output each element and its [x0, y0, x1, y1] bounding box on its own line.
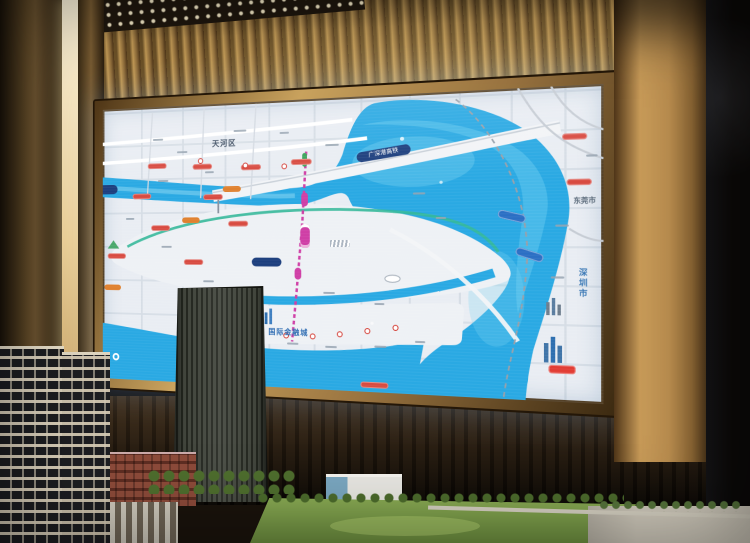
- model-residential-tower: [0, 346, 64, 543]
- map-microtext: [586, 154, 598, 157]
- map-microtext: [153, 139, 163, 141]
- map-microtext: [551, 276, 565, 278]
- showroom-photo: 天河区 国际金融城 深圳市 东莞市 广深港高铁: [0, 0, 750, 543]
- model-sports-field: [330, 516, 480, 536]
- route-badge: [184, 259, 203, 265]
- stadium-icon: [384, 275, 400, 283]
- convention-center-icon: [330, 240, 350, 247]
- dongguan-label: 东莞市: [573, 194, 595, 205]
- station-dot: [310, 333, 316, 339]
- map-microtext: [161, 246, 171, 248]
- map-microtext: [177, 151, 187, 153]
- transit-badge: [103, 185, 118, 195]
- canton-tower-icon: [217, 198, 219, 213]
- map-microtext: [323, 292, 335, 294]
- route-badge: [228, 221, 248, 227]
- model-tower-trees: [148, 468, 298, 494]
- map-microtext: [555, 224, 569, 226]
- ferry-badge: [252, 258, 282, 267]
- route-badge-orange: [182, 217, 200, 223]
- map-microtext: [325, 346, 337, 348]
- right-gold-pillar: [614, 0, 714, 462]
- map-microtext: [126, 218, 134, 220]
- map-microtext: [158, 180, 168, 182]
- skyline-icon: [557, 305, 560, 316]
- metro-station-badge: [300, 224, 310, 248]
- route-badge: [291, 159, 312, 166]
- skyline-icon: [546, 302, 549, 315]
- route-badge: [562, 133, 587, 140]
- hills-icon: [108, 240, 120, 248]
- model-residential-tower: [62, 352, 110, 543]
- map-microtext: [205, 171, 214, 173]
- map-microtext: [280, 132, 289, 134]
- metro-marker: [295, 268, 302, 280]
- metro-marker: [301, 192, 308, 206]
- route-badge: [133, 193, 152, 199]
- map-microtext: [415, 341, 425, 343]
- skyline-icon: [551, 337, 556, 363]
- map-microtext: [287, 342, 298, 344]
- map-microtext: [203, 280, 214, 282]
- landmark-badge: [548, 365, 575, 375]
- map-microtext: [374, 303, 384, 305]
- station-dot: [337, 331, 343, 337]
- route-badge: [151, 225, 170, 231]
- skyline-icon: [544, 343, 548, 363]
- shenzhen-label: 深圳市: [577, 268, 590, 299]
- skyline-icon: [552, 298, 555, 315]
- dark-glass-wall: [706, 0, 750, 543]
- route-badge: [567, 178, 592, 185]
- financial-city-label: 国际金融城: [268, 326, 308, 338]
- route-badge-orange: [104, 284, 121, 290]
- skyscraper-icon: [265, 312, 268, 324]
- skyline-icon: [557, 346, 562, 363]
- route-badge: [148, 163, 167, 169]
- map-microtext: [413, 192, 425, 194]
- skyscraper-icon: [269, 309, 272, 325]
- ferris-wheel-icon: [113, 353, 120, 361]
- route-badge-orange: [223, 186, 241, 192]
- model-tree-row: [258, 492, 624, 506]
- route-badge: [193, 164, 212, 170]
- station-dot: [364, 328, 370, 334]
- map-microtext: [374, 346, 386, 348]
- route-badge: [203, 194, 223, 200]
- district-label: 天河区: [212, 138, 236, 149]
- station-dot: [392, 325, 398, 331]
- led-screen-frame: 天河区 国际金融城 深圳市 东莞市 广深港高铁: [93, 70, 618, 418]
- route-badge: [108, 253, 126, 259]
- map-microtext: [436, 217, 446, 219]
